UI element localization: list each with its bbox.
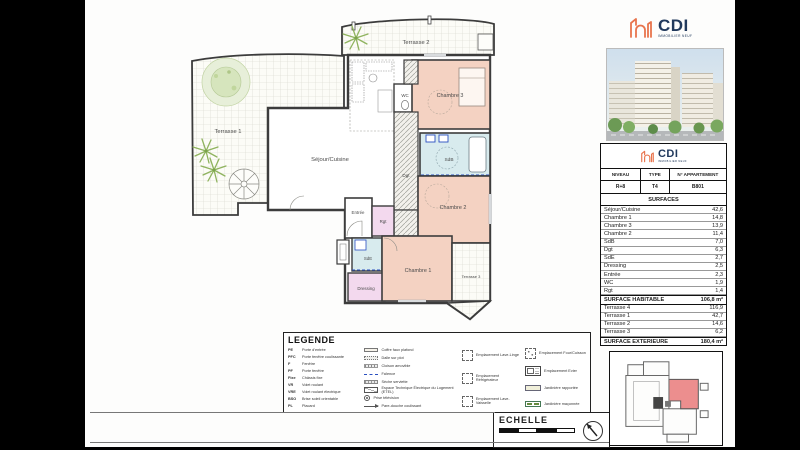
room-label: Chambre 1 [405,268,432,274]
faience-icon [364,374,378,375]
brand-tagline: IMMOBILIER NEUF [658,35,692,38]
terrasse-3: Terrasse 3 [447,243,490,319]
coffre-faux-plafond-icon [364,348,378,352]
room-dressing: Dressing [348,273,385,301]
surface-row: Chambre 1 14,8 [601,214,726,222]
legend-item: PL Placard [288,402,358,409]
cloison-amovible-icon [364,364,378,368]
surfaces-rows: Séjour/Cuisine 42,6 Chambre 1 14,8 Chamb… [601,206,726,345]
legend-item: PF Porte fenêtre [288,367,358,374]
legend-box: LEGENDE PE Porte d'entrée PFC Porte fenê… [283,332,591,413]
surface-row: SdB 7,0 [601,239,726,247]
pare-douche-icon [364,406,378,407]
room-chambre1: Chambre 1 [382,236,452,301]
surface-row: Dressing 2,5 [601,263,726,271]
surface-row: SdE 2,7 [601,255,726,263]
jardiniere-rapportee-icon [525,385,541,391]
legend-item: Emplacement Réfrigérateur [462,371,519,385]
terrasse-2: Terrasse 2 [342,16,494,55]
legend-item: Emplacement Lave-Vaisselle [462,394,519,408]
legend-item: VRE Volet roulant électrique [288,388,358,395]
legend-item: BSO Brise soleil orientable [288,395,358,402]
room-rgt: Rgt [372,206,394,236]
surface-row: Entrée 2,3 [601,271,726,279]
surface-exterieure-row: SURFACE EXTERIEURE 180,4 m² [601,337,726,345]
emplacement-four-icon [525,348,536,359]
room-label: Chambre 2 [440,205,467,211]
room-dgt: Dgt [394,112,418,236]
frame-line [90,442,610,443]
room-label: Dgt [402,173,410,178]
legend-item: VR Volet roulant [288,381,358,388]
surface-row: Rgt 1,4 [601,287,726,295]
etel-icon [364,387,378,393]
surface-habitable-row: SURFACE HABITABLE 106,8 m² [601,295,726,304]
legend-item: Emplacement Lave-Linge [462,348,519,362]
north-arrow-icon [581,419,605,443]
room-sde: SdE [337,238,382,271]
dalle-sur-plot-icon [364,356,378,360]
surface-row: Dgt 6,3 [601,247,726,255]
cdi-buildings-icon [640,149,655,164]
room-chambre2: Chambre 2 [418,176,490,243]
room-label: Entrée [352,210,365,215]
surface-row: Séjour/Cuisine 42,6 [601,206,726,214]
emplacement-dashed-icon [462,373,473,384]
cdi-logo-small: CDI IMMOBILIER NEUF [601,144,726,168]
room-label: Chambre 3 [437,93,464,99]
terrace-row: Terrasse 4 116,9 [601,305,726,313]
room-label: Rgt [380,219,388,224]
prise-television-icon [364,395,370,401]
room-label: Terrasse 2 [402,40,429,46]
terrace-row: Terrasse 2 14,6 [601,321,726,329]
seche-serviette-icon [364,380,378,384]
type-value: T4 [641,181,670,193]
spiral-staircase [229,169,259,199]
info-header-row: NIVEAU TYPE N° APPARTEMENT [601,168,726,181]
surface-row: WC 1,9 [601,279,726,287]
legend-emplacements-right: Emplacement Four/Cuisson Emplacement Evi… [525,346,586,410]
highlighted-unit [669,379,698,408]
building-photo [606,48,724,141]
emplacement-evier-icon [525,366,541,376]
jardiniere-maconnee-icon [525,401,541,407]
room-label: Terrasse 1 [214,129,241,135]
terrace-row: Terrasse 1 42,7 [601,313,726,321]
floor-plan: Terrasse 2 Terrasse 1 [183,8,505,328]
legend-title: LEGENDE [288,335,586,345]
surface-row: Chambre 3 13,9 [601,222,726,230]
room-label: Dressing [357,286,375,291]
legend-item: F Fenêtre [288,360,358,367]
plan-sheet: Terrasse 2 Terrasse 1 [85,0,735,447]
appartement-number: B801 [670,181,726,193]
apartment-info-table: CDI IMMOBILIER NEUF NIVEAU TYPE N° APPAR… [600,143,727,346]
surface-row: Chambre 2 11,4 [601,230,726,238]
cdi-buildings-icon [628,15,654,41]
niveau-value: R+8 [601,181,641,193]
surfaces-title: SURFACES [601,194,726,206]
room-label: WC [401,93,408,98]
emplacement-dashed-icon [462,396,473,407]
room-label: Séjour/Cuisine [311,157,349,163]
room-entree: Entrée [345,198,372,238]
legend-symbols: Coffre faux plafond Dalle sur plot Clois… [364,346,455,410]
emplacement-dashed-icon [462,350,473,361]
room-label: SdB [444,157,453,163]
terrace-row: Terrasse 3 6,2 [601,329,726,337]
legend-emplacements-left: Emplacement Lave-Linge Emplacement Réfri… [462,346,519,410]
legend-abbreviations: PE Porte d'entrée PFC Porte fenêtre coul… [288,346,358,410]
screenshot-root: Terrasse 2 Terrasse 1 [0,0,800,450]
room-sdb: SdB [420,133,490,176]
room-label: Terrasse 3 [462,274,481,279]
brand-name: CDI [658,17,692,34]
frame-line [90,412,495,413]
room-label: SdE [364,256,372,261]
info-value-row: R+8 T4 B801 [601,181,726,194]
key-plan [609,351,723,446]
legend-item: PE Porte d'entrée [288,346,358,353]
legend-item: PFC Porte fenêtre coulissante [288,353,358,360]
bush-icon [211,67,241,97]
cdi-logo: CDI IMMOBILIER NEUF [628,13,728,43]
legend-item: Fixe Châssis fixe [288,374,358,381]
